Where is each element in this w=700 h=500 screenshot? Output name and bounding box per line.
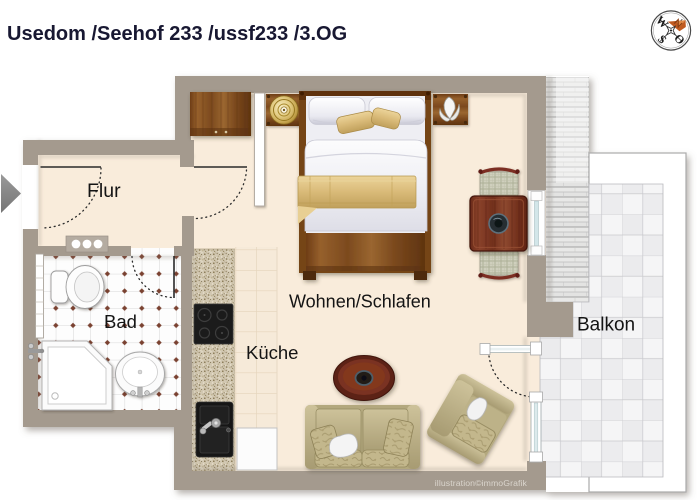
svg-text:Bad: Bad: [104, 311, 137, 332]
svg-text:Flur: Flur: [87, 180, 121, 202]
svg-text:illustration©immoGrafik: illustration©immoGrafik: [435, 478, 528, 488]
svg-text:Küche: Küche: [246, 342, 298, 363]
svg-text:Usedom /Seehof 233 /ussf233 /3: Usedom /Seehof 233 /ussf233 /3.OG: [7, 23, 347, 45]
svg-text:Balkon: Balkon: [577, 315, 635, 336]
svg-text:Wohnen/Schlafen: Wohnen/Schlafen: [289, 292, 431, 312]
